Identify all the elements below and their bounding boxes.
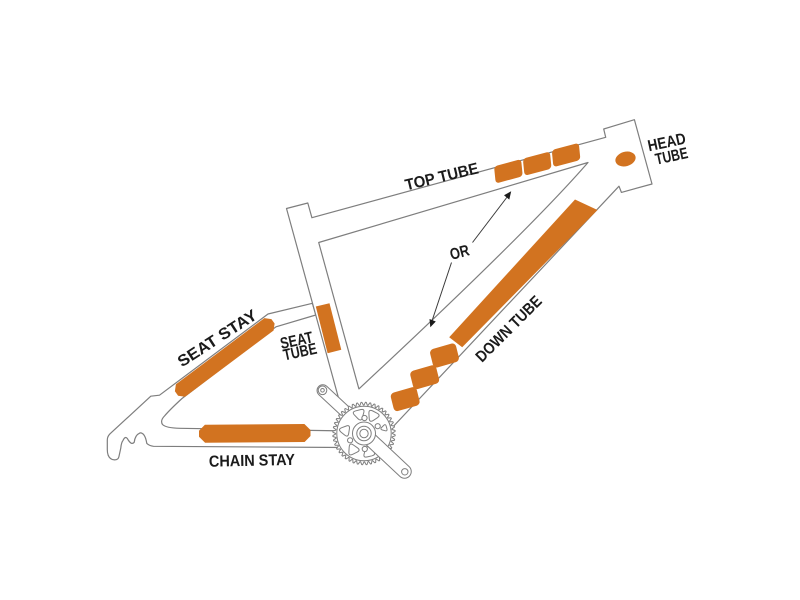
svg-text:CHAIN STAY: CHAIN STAY <box>209 452 296 471</box>
